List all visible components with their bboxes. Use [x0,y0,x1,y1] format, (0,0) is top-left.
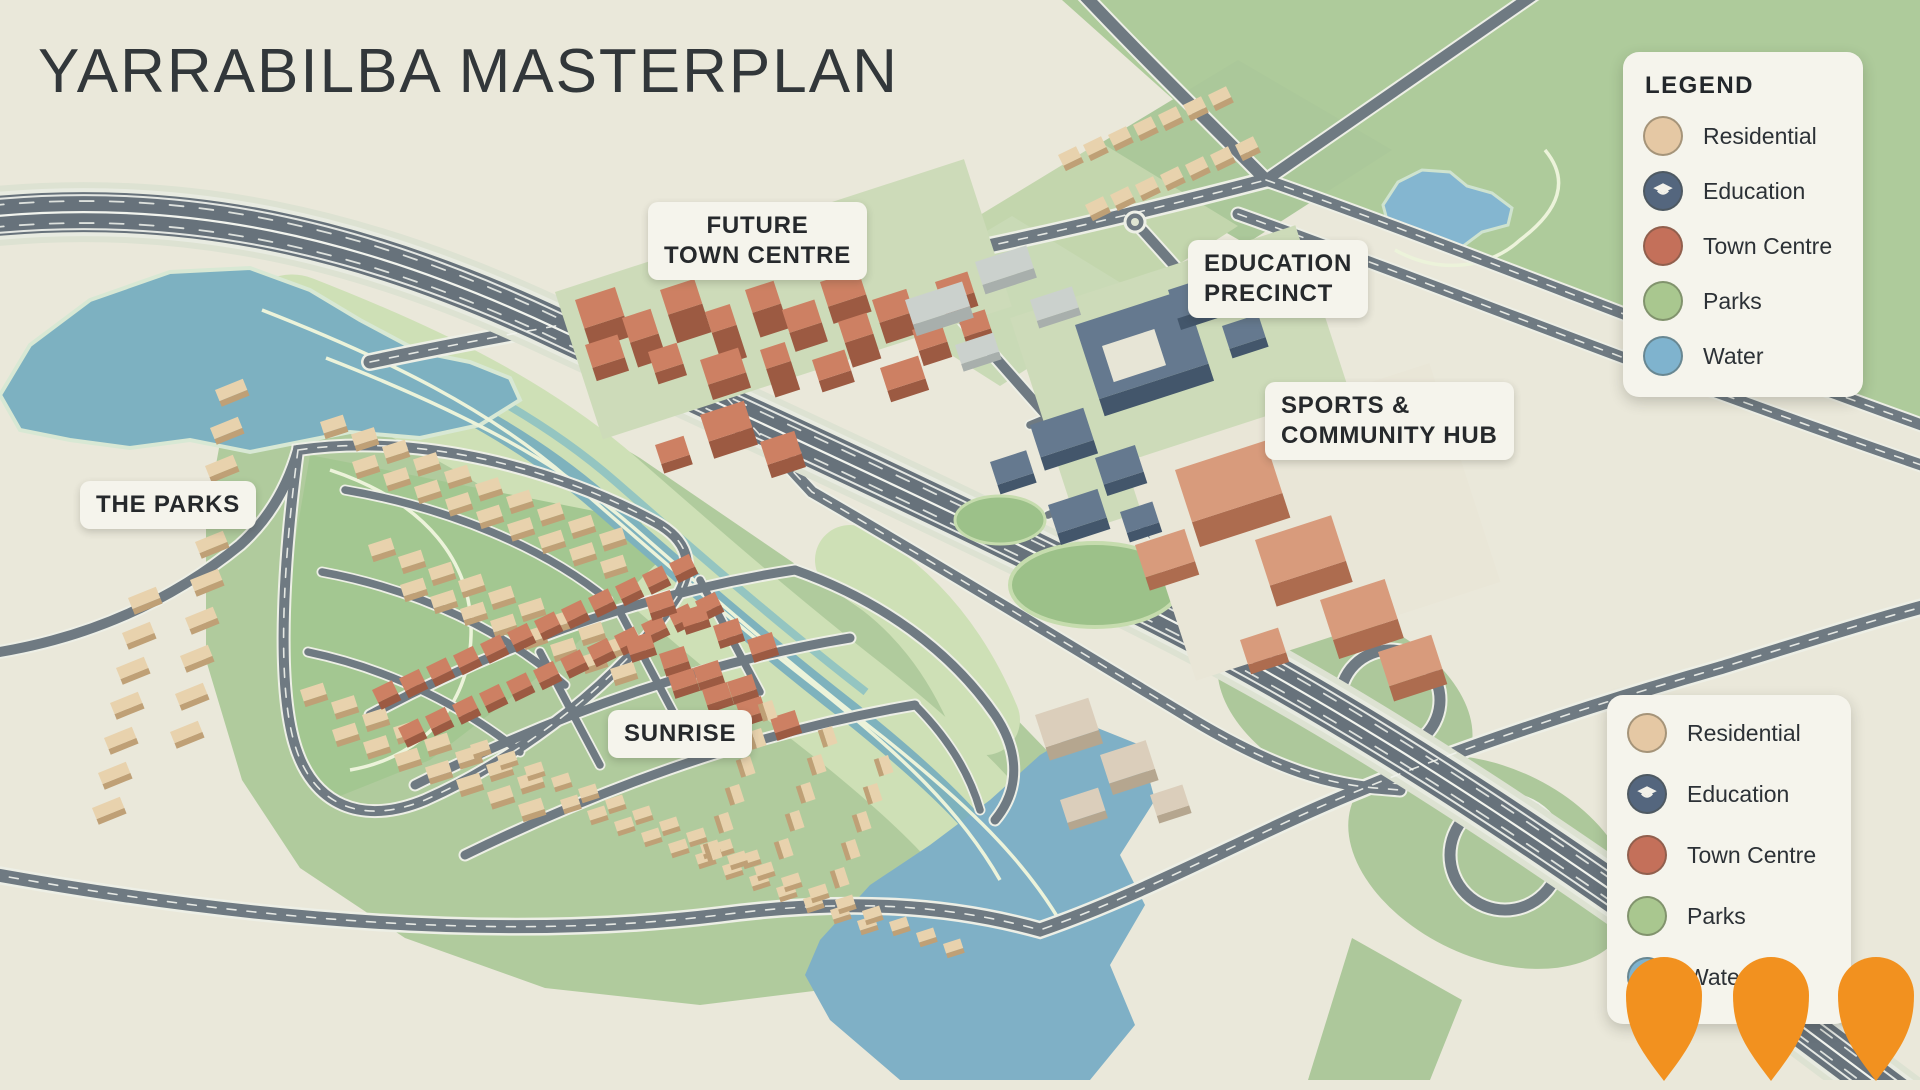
legend-item-town-centre: Town Centre [1627,835,1831,875]
label-sunrise: SUNRISE [608,710,752,758]
map-pin[interactable] [1622,953,1706,1085]
legend-item-education: Education [1627,774,1831,814]
residential-swatch [1627,713,1667,753]
legend-item-parks: Parks [1627,896,1831,936]
legend-item-education: Education [1643,171,1843,211]
legend-item-town-centre: Town Centre [1643,226,1843,266]
label-education-precinct: EDUCATION PRECINCT [1188,240,1368,318]
legend-item-parks: Parks [1643,281,1843,321]
legend-item-residential: Residential [1643,116,1843,156]
graduation-cap-icon [1643,171,1683,211]
residential-swatch [1643,116,1683,156]
page-title: YARRABILBA MASTERPLAN [38,36,899,107]
town-centre-swatch [1627,835,1667,875]
water-swatch [1643,336,1683,376]
label-the-parks: THE PARKS [80,481,256,529]
town-centre-swatch [1643,226,1683,266]
label-future-town-centre: FUTURE TOWN CENTRE [648,202,867,280]
legend-title: LEGEND [1645,72,1843,100]
parks-swatch [1643,281,1683,321]
legend-item-residential: Residential [1627,713,1831,753]
map-pin[interactable] [1729,953,1813,1085]
graduation-cap-icon [1627,774,1667,814]
legend-item-water: Water [1643,336,1843,376]
parks-swatch [1627,896,1667,936]
label-sports-community-hub: SPORTS & COMMUNITY HUB [1265,382,1514,460]
map-pin[interactable] [1834,953,1918,1085]
legend-panel: LEGEND Residential Education Town Centre… [1623,52,1863,397]
